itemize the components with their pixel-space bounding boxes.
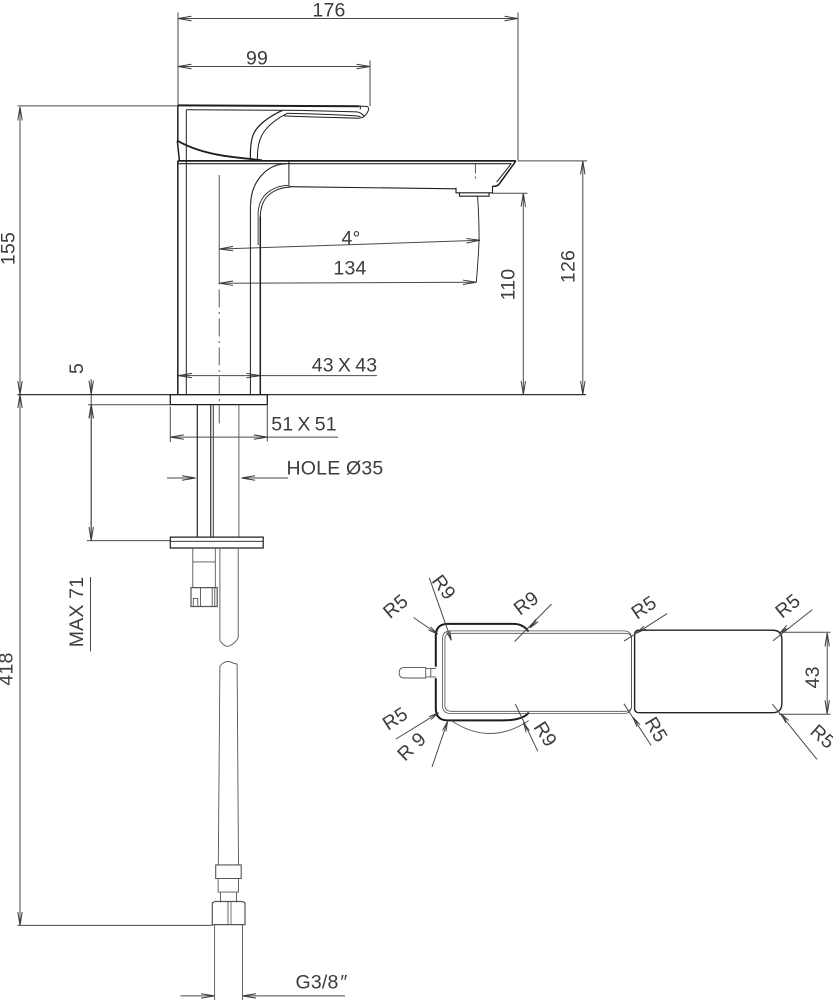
svg-text:99: 99 bbox=[246, 48, 268, 70]
svg-text:HOLE Ø35: HOLE Ø35 bbox=[287, 458, 384, 480]
svg-text:4°: 4° bbox=[341, 228, 360, 250]
svg-text:G3/8 ″: G3/8 ″ bbox=[295, 972, 347, 994]
svg-text:176: 176 bbox=[312, 0, 345, 22]
svg-text:MAX 71: MAX 71 bbox=[66, 577, 88, 648]
svg-text:418: 418 bbox=[0, 652, 18, 685]
svg-text:126: 126 bbox=[558, 250, 580, 283]
svg-text:43: 43 bbox=[802, 666, 824, 688]
svg-text:5: 5 bbox=[66, 363, 88, 374]
svg-text:43 X 43: 43 X 43 bbox=[312, 355, 378, 377]
svg-text:110: 110 bbox=[498, 269, 520, 301]
svg-text:134: 134 bbox=[333, 258, 366, 280]
svg-text:51 X 51: 51 X 51 bbox=[271, 414, 337, 436]
svg-text:155: 155 bbox=[0, 232, 20, 265]
